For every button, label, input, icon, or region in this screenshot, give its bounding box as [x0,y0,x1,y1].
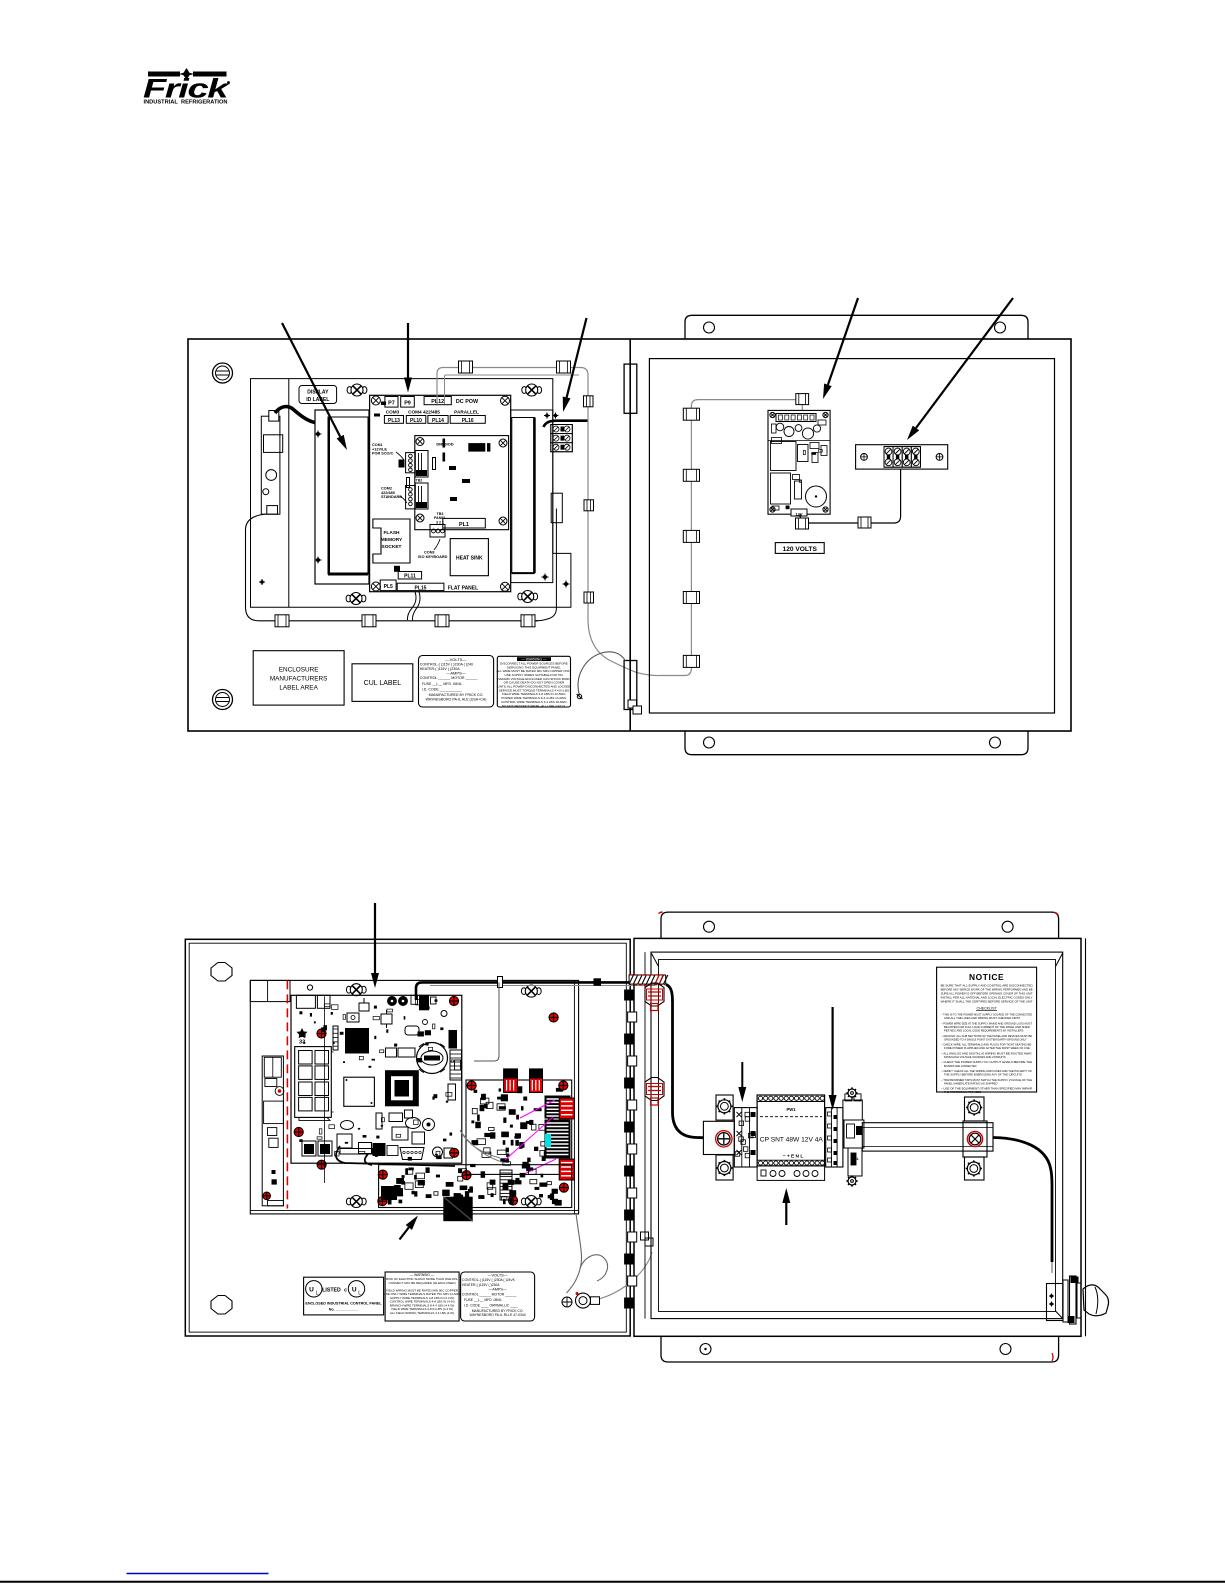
svg-text:CHECKLIST: CHECKLIST [977,1007,998,1011]
svg-text:120 VOLTS: 120 VOLTS [783,546,818,553]
svg-text:ISO KEYBOARD: ISO KEYBOARD [418,555,448,559]
svg-text:FORE POWER IS APPLIED AND AFTE: FORE POWER IS APPLIED AND AFTER THE FIRS… [944,1046,1030,1050]
svg-text:CONTROL ______ MOTOR ______: CONTROL ______ MOTOR ______ [462,1292,517,1296]
svg-text:I.D. CODE ___________: I.D. CODE ___________ [422,687,463,691]
svg-text:COM3: COM3 [386,409,400,414]
svg-text:c: c [344,1288,347,1294]
svg-text:FROM HIGH VOLTAGE SOURCES AND: FROM HIGH VOLTAGE SOURCES AND CONDUITS [944,1055,1006,1059]
svg-text:CONTROL-( )115V ( )230A ( )24V: CONTROL-( )115V ( )230A ( )24VK [462,1278,516,1282]
svg-text:LABEL AREA: LABEL AREA [279,685,318,692]
svg-text:FUSE __L__ MFD .08/4L: FUSE __L__ MFD .08/4L [464,1298,502,1302]
svg-text:− + E N L: − + E N L [783,1154,804,1160]
svg-text:—VOLTS—: —VOLTS— [446,657,467,662]
svg-text:FLASH: FLASH [384,530,401,536]
svg-text:HEATER-( )115V ( )230A: HEATER-( )115V ( )230A [462,1283,500,1287]
svg-text:POR SCO/C: POR SCO/C [372,452,394,456]
svg-text:GROUNDED TO A SINGLE POINT SYS: GROUNDED TO A SINGLE POINT SYSTEM EARTH … [944,1037,1027,1041]
svg-text:—AMPS—: —AMPS— [488,1287,507,1291]
svg-text:PL13: PL13 [388,418,400,424]
svg-text:THE SUPPLY BEFORE ENERGIZING A: THE SUPPLY BEFORE ENERGIZING ANY OF THE … [944,1073,1022,1077]
svg-text:U: U [352,1287,357,1294]
svg-text:3L: 3L [855,1157,859,1161]
svg-text:WAYNESBORO PA-IL RLLE 47-0344: WAYNESBORO PA-IL RLLE 47-0344 [470,1313,526,1317]
svg-text:PL12: PL12 [431,399,444,405]
svg-text:STANDARD: STANDARD [381,495,402,499]
svg-text:INDUSTRIAL REFRIGERATION: INDUSTRIAL REFRIGERATION [144,100,228,106]
svg-text:CONTROL ______ MOTOR ______: CONTROL ______ MOTOR ______ [420,676,479,680]
svg-text:MANUFACTURED BY FRICK CO.: MANUFACTURED BY FRICK CO. [429,693,484,697]
svg-text:PL5: PL5 [384,584,393,590]
svg-text:No. ___________: No. ___________ [329,1307,359,1311]
svg-text:CP SNT 48W 12V 4A: CP SNT 48W 12V 4A [760,1137,823,1144]
svg-text:SOCKET: SOCKET [382,544,402,550]
svg-text:AND ALL THE LINES AND WIRING M: AND ALL THE LINES AND WIRING MUST CHECKE… [944,1016,1020,1020]
svg-text:PL14: PL14 [432,418,444,424]
svg-text:PL16: PL16 [462,418,474,424]
svg-text:PL11: PL11 [404,574,416,580]
svg-text:PW1: PW1 [786,1107,796,1112]
svg-text:WAYNESBORO PA-IL ALE (USA+CA): WAYNESBORO PA-IL ALE (USA+CA) [426,697,487,701]
svg-text:CONNECT MAY BE REQUIRED (JE EN: CONNECT MAY BE REQUIRED (JE ENCLOSED) [389,1281,456,1285]
svg-text:BOARDS ARE CONNECTED: BOARDS ARE CONNECTED [944,1064,976,1068]
svg-text:—AMPS—: —AMPS— [446,670,465,675]
svg-text:NOTICE: NOTICE [969,972,1004,982]
svg-text:PL10: PL10 [410,418,422,424]
svg-text:L: L [358,1291,361,1297]
svg-text:ALL FIELD WIRING TERMINALS 4.4: ALL FIELD WIRING TERMINALS 4.4 LBS (4 IN… [390,1311,454,1315]
svg-text:L: L [316,1291,319,1297]
svg-text:FLAT PANEL: FLAT PANEL [448,585,478,591]
svg-text:CONTROL-( )115V ( )230A ( )240: CONTROL-( )115V ( )230A ( )240 [420,662,473,666]
svg-text:CON3: CON3 [424,551,435,555]
svg-text:P9: P9 [404,400,411,406]
svg-text:PER NEC AND LOCAL CODE REQUIRE: PER NEC AND LOCAL CODE REQUIREMENTS BY I… [944,1029,1023,1033]
svg-text:ID LABEL: ID LABEL [306,397,329,403]
svg-text:DO NOT RESTRICT PANEL-ALL LINE: DO NOT RESTRICT PANEL-ALL LINE 2 FT CL [502,704,566,708]
svg-text:CUL LABEL: CUL LABEL [364,680,402,687]
svg-text:P7: P7 [388,400,395,406]
svg-text:TB2: TB2 [416,479,423,483]
svg-text:FUSE __L__ MFD .08/4L: FUSE __L__ MFD .08/4L [422,682,462,686]
svg-text:I.D. CODE ____ ORRMALLIC ____: I.D. CODE ____ ORRMALLIC ____ [464,1304,518,1308]
svg-text:MEMORY: MEMORY [381,537,403,543]
svg-text:COM4 422/485: COM4 422/485 [408,409,440,414]
svg-text:HEAT SINK: HEAT SINK [456,555,483,561]
svg-text:U: U [309,1287,314,1294]
svg-text:12V: 12V [795,512,802,517]
svg-text:PL1: PL1 [459,522,469,528]
svg-text:DC POW: DC POW [456,399,479,405]
svg-text:PARALLEL: PARALLEL [454,409,479,414]
svg-text:THE PROTECTION PROVIDED: THE PROTECTION PROVIDED [944,1090,981,1094]
svg-text:MANUFACTURERS: MANUFACTURERS [270,676,328,683]
svg-text:ENCLOSED INDUSTRIAL CONTROL PA: ENCLOSED INDUSTRIAL CONTROL PANEL [305,1302,382,1306]
svg-text:PANEL NAMEPLATE RATING AS SHIP: PANEL NAMEPLATE RATING AS SHIPPED [944,1081,997,1085]
svg-text:PL15: PL15 [415,585,427,591]
svg-text:ENCLOSURE: ENCLOSURE [279,667,319,674]
svg-text:WHERE IT SHALL THE CERTIFIED B: WHERE IT SHALL THE CERTIFIED BEFORE SERV… [941,1000,1033,1004]
svg-text:—VOLTS—: —VOLTS— [488,1273,508,1277]
svg-text:LISTED: LISTED [322,1288,341,1294]
